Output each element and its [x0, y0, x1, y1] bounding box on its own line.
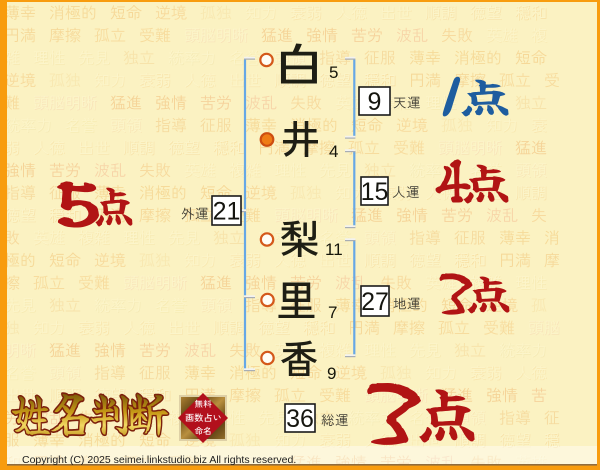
svg-text:5: 5	[329, 63, 338, 82]
svg-text:36: 36	[286, 405, 314, 433]
svg-text:21: 21	[213, 198, 241, 226]
svg-text:9: 9	[327, 364, 336, 383]
svg-text:Copyright (C) 2025 seimei.link: Copyright (C) 2025 seimei.linkstudio.biz…	[22, 454, 296, 466]
svg-text:7: 7	[328, 303, 337, 322]
svg-text:27: 27	[361, 288, 389, 316]
svg-text:15: 15	[361, 178, 389, 206]
svg-text:4: 4	[329, 142, 338, 161]
svg-text:11: 11	[325, 240, 343, 259]
svg-text:9: 9	[368, 88, 382, 116]
